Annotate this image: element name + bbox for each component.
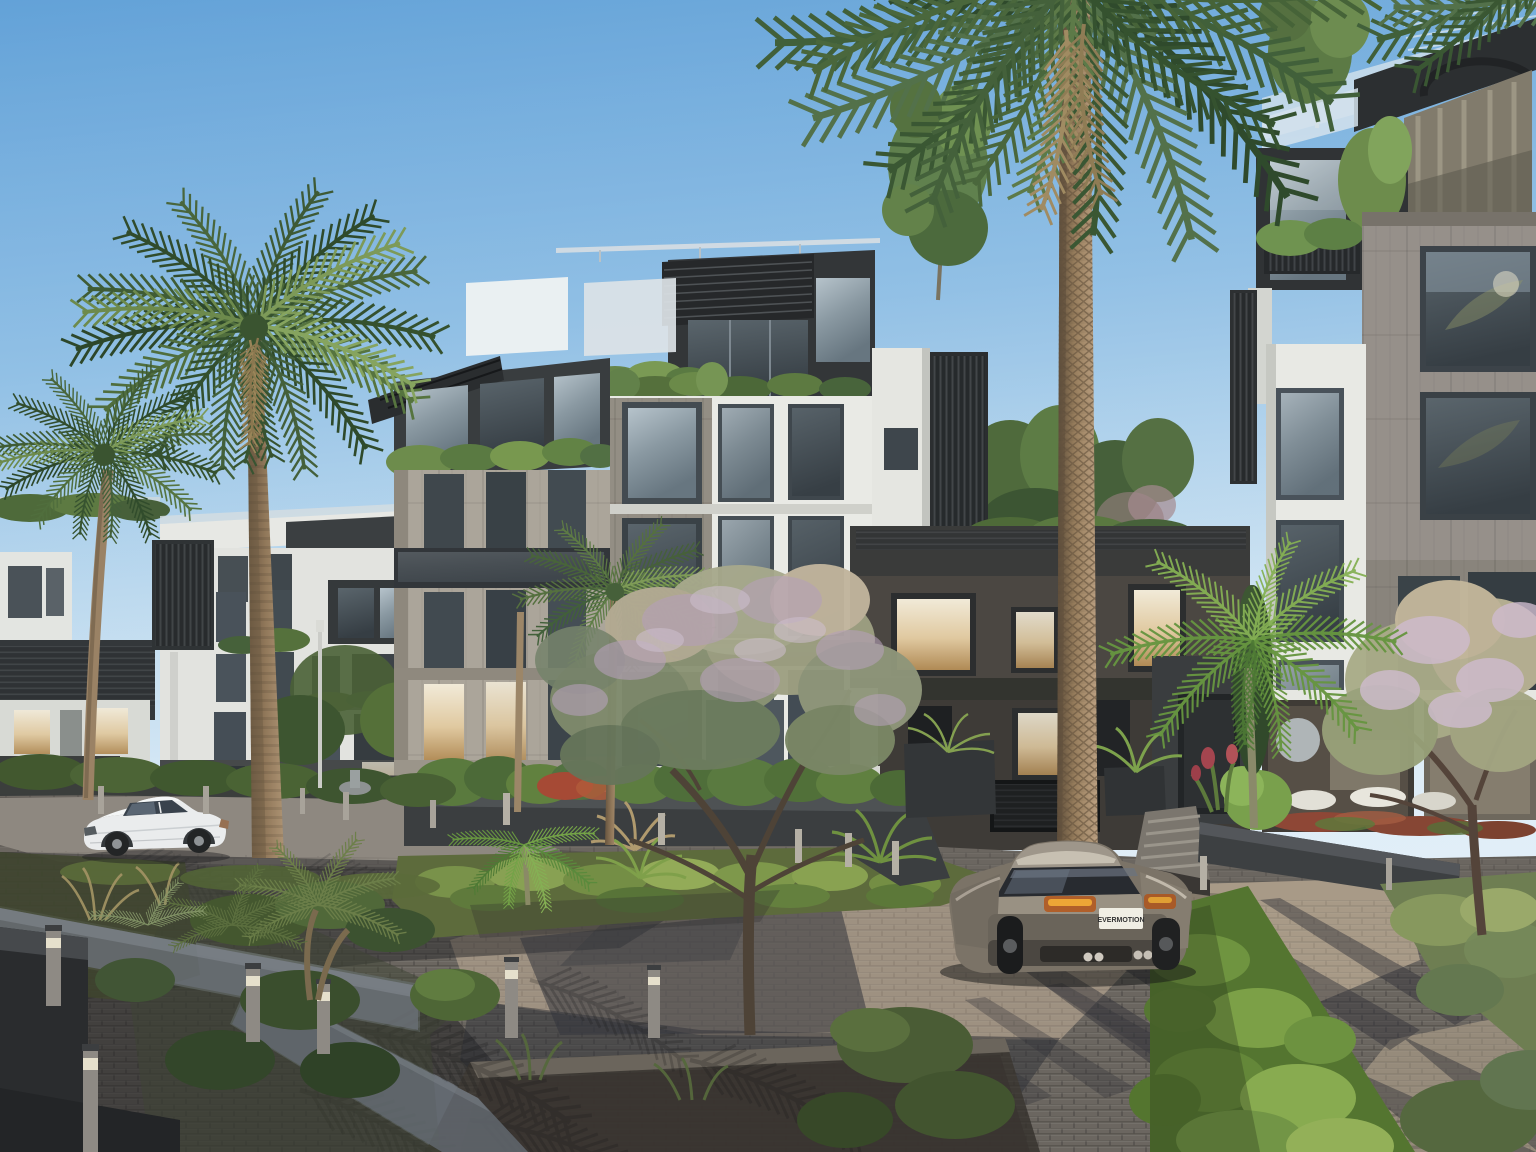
svg-text:EVERMOTION: EVERMOTION (1097, 917, 1144, 924)
